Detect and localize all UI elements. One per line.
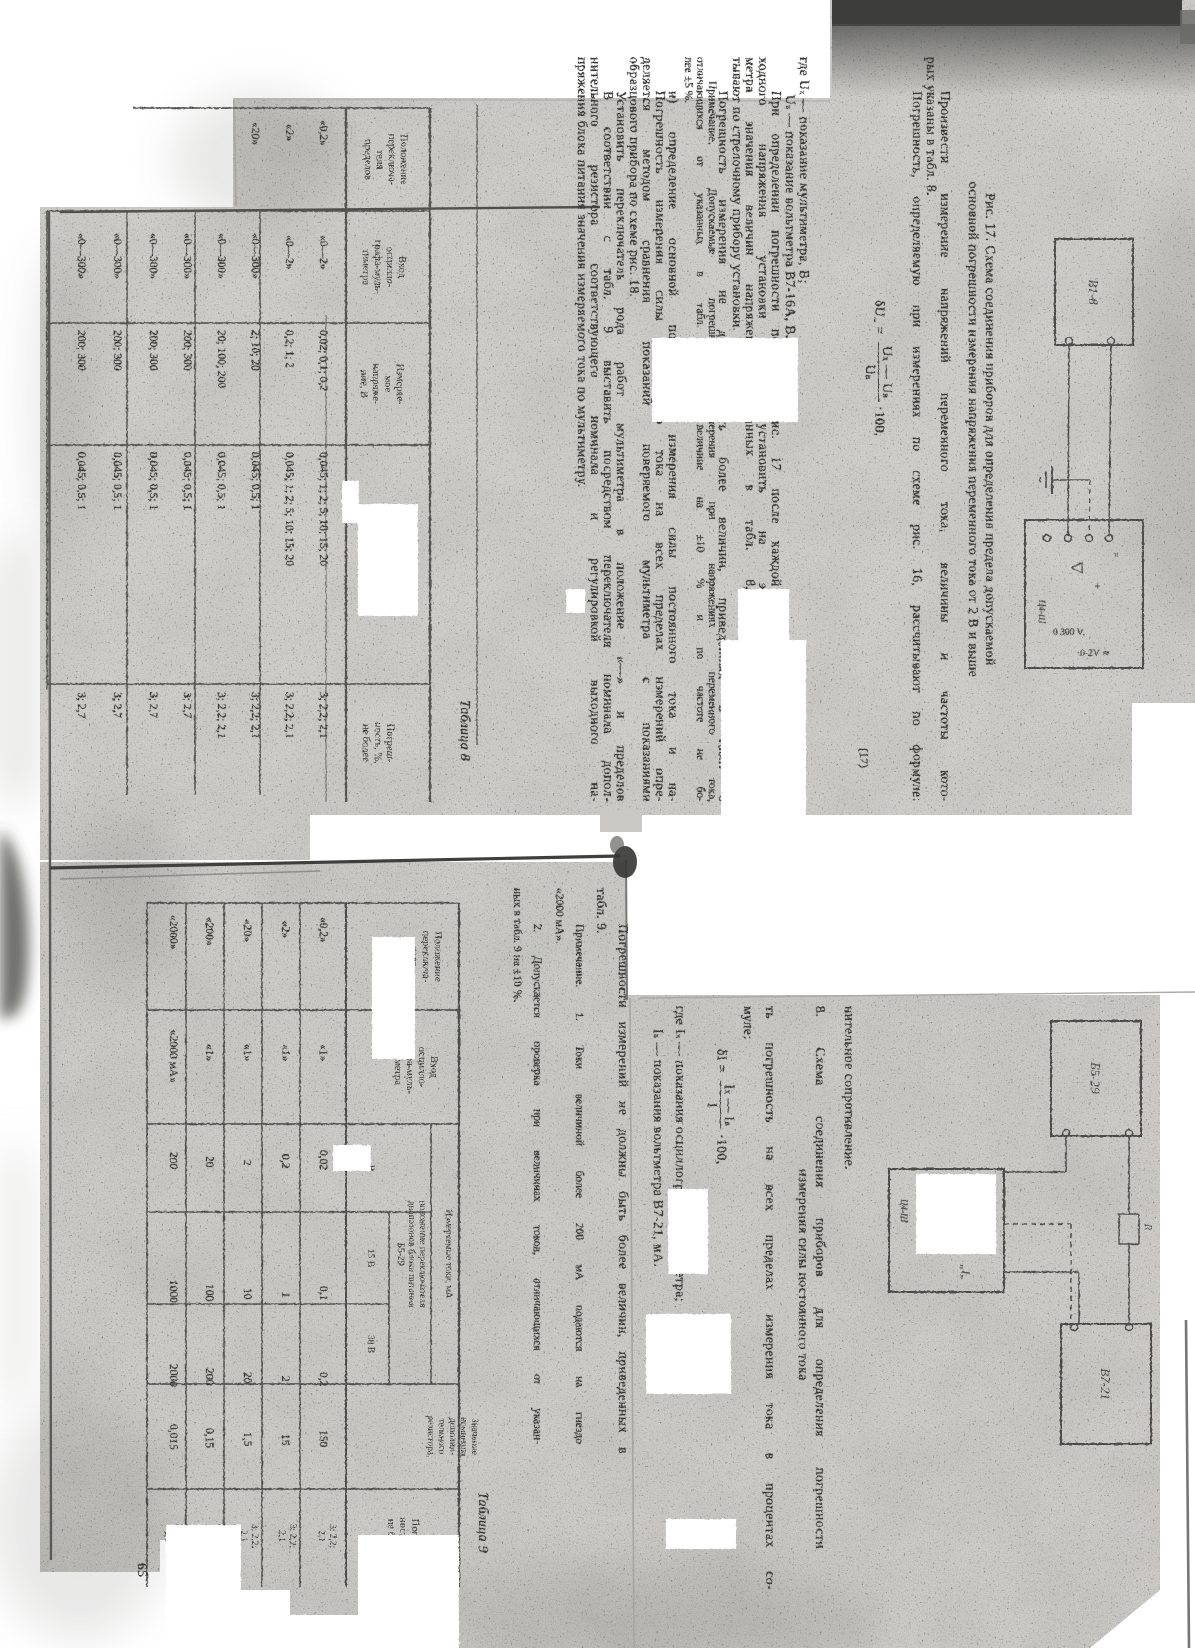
svg-text:В7-21: В7-21 <box>1098 1368 1113 1400</box>
svg-text:R: R <box>1142 1223 1153 1230</box>
svg-text:Б5-29: Б5-29 <box>1088 1061 1103 1094</box>
svg-text:В1-8: В1-8 <box>1086 279 1101 305</box>
